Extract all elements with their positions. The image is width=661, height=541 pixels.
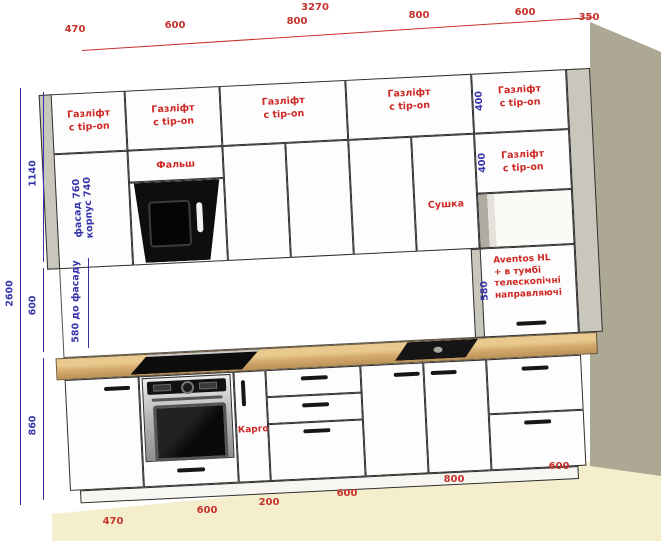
wall-cabinet-door [285, 140, 354, 258]
dim-height-2600: 2600 [5, 264, 16, 324]
dim-total-width: 3270 [298, 2, 332, 13]
dim-bottom-600b: 600 [330, 488, 364, 499]
wall-cabinet-gaslift-2: Газліфт с tip-on [125, 86, 223, 151]
dim-top-800: 800 [280, 16, 314, 27]
falsh-panel: Фальш [127, 146, 223, 183]
kitchen-drawing-scene: Газліфт с tip-on Газліфт с tip-on Газліф… [0, 0, 661, 541]
door-handle [104, 386, 130, 391]
drawer-handle [524, 419, 551, 424]
sink-base-door-left [360, 362, 428, 476]
dim-height-860: 860 [28, 396, 39, 456]
oven-handle [152, 395, 223, 401]
dim-height-600: 600 [28, 276, 39, 336]
oven-control-panel [147, 378, 227, 395]
dim-bottom-800: 800 [437, 474, 471, 485]
drawer-handle [302, 402, 329, 407]
oven-display-left [153, 384, 171, 392]
aventos-cabinet: Aventos HL + в тумбі телескопічні направ… [480, 244, 579, 338]
dim-height-1140: 1140 [28, 144, 39, 204]
wall-cabinet-door [222, 143, 291, 261]
dim-line-600 [43, 268, 44, 352]
aventos-handle [516, 320, 546, 325]
oven-glass-door [153, 402, 229, 461]
dim-line-1140 [43, 92, 44, 262]
dim-line-860 [43, 358, 44, 500]
dim-line-2600 [20, 88, 21, 505]
wall-cabinet-gaslift-1: Газліфт с tip-on [51, 91, 128, 155]
built-in-oven [142, 374, 235, 462]
dim-top-800b: 800 [402, 10, 436, 21]
open-niche [477, 189, 575, 249]
wall-cabinet-door [348, 137, 417, 255]
dim-bottom-470: 470 [96, 516, 130, 527]
door-handle [431, 370, 457, 375]
base-cabinet-door-1 [65, 376, 144, 490]
door-handle [394, 372, 420, 377]
dim-bottom-200: 200 [252, 497, 286, 508]
oven-knob [181, 381, 195, 395]
drawer-handle [301, 375, 328, 380]
kitchen-elevation: Газліфт с tip-on Газліфт с tip-on Газліф… [39, 68, 615, 515]
wall-cabinet-gaslift-3: Газліфт с tip-on [219, 80, 348, 146]
wall-cabinet-gaslift-4: Газліфт с tip-on [345, 74, 474, 140]
kargo-handle [241, 380, 246, 406]
hood-screen [148, 200, 192, 248]
dim-side-350: 350 [572, 12, 606, 23]
oven-display-right [199, 382, 217, 390]
sushka-label: Сушка [415, 197, 477, 213]
dim-bottom-600c: 600 [542, 461, 576, 472]
drawer [268, 419, 366, 481]
drawer-handle [521, 365, 548, 370]
gaslift-label: с tip-on [53, 119, 126, 136]
falsh-label: Фальш [129, 156, 223, 174]
kargo-pullout: Карго [233, 370, 270, 482]
dim-bottom-600: 600 [190, 505, 224, 516]
drawer-handle [303, 428, 330, 433]
dim-580-to-facade: 580 до фасаду [71, 254, 82, 350]
sink-base-door-right [423, 359, 491, 473]
dim-top-600b: 600 [508, 7, 542, 18]
dim-top-470: 470 [58, 24, 92, 35]
drawer [486, 355, 584, 415]
dim-line-580-facade [88, 258, 89, 348]
dish-dryer-cabinet: Сушка [411, 134, 480, 252]
dim-top-600: 600 [158, 20, 192, 31]
